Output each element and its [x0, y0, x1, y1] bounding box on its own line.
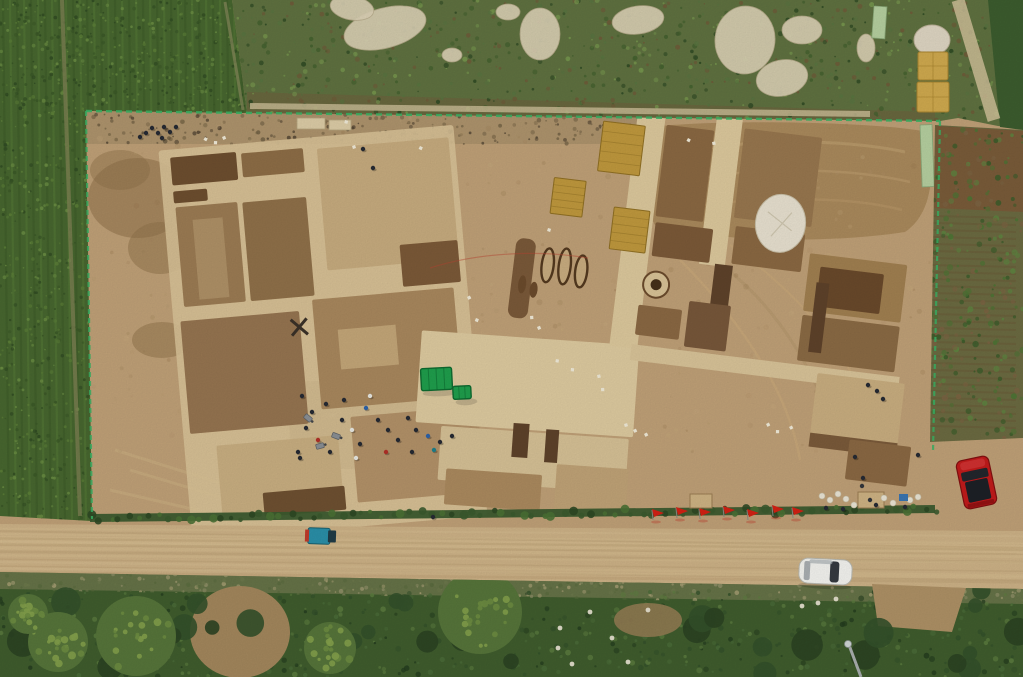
aerial-photo-stage: Aerial drone view of a large rectangular…	[0, 0, 1023, 677]
excavation-aerial-scene	[0, 0, 1023, 677]
film-grain-overlay	[0, 0, 1023, 677]
